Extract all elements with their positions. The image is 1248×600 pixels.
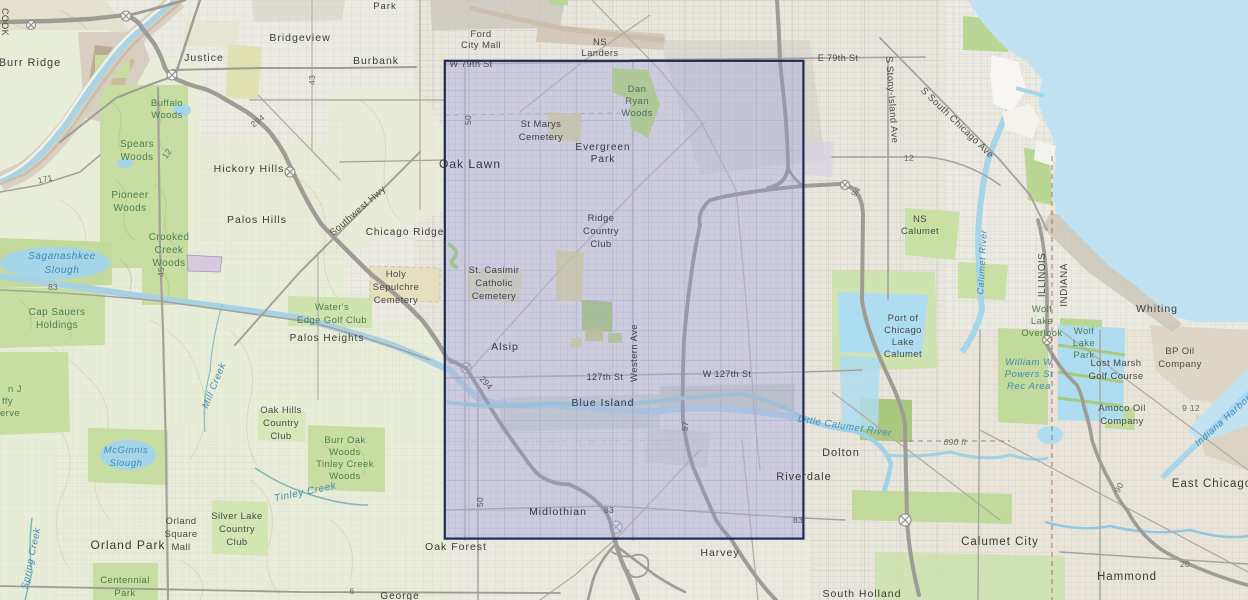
svg-text:Crooked: Crooked xyxy=(149,232,190,243)
svg-text:Creek: Creek xyxy=(155,245,184,256)
svg-text:Woods: Woods xyxy=(329,447,360,458)
svg-text:20: 20 xyxy=(1180,559,1190,569)
svg-text:Company: Company xyxy=(1158,359,1201,370)
svg-text:Hammond: Hammond xyxy=(1097,571,1157,583)
svg-text:Silver Lake: Silver Lake xyxy=(211,511,262,522)
svg-text:Dolton: Dolton xyxy=(822,447,860,459)
svg-text:Country: Country xyxy=(583,226,619,237)
svg-text:Catholic: Catholic xyxy=(475,278,513,289)
svg-text:Pioneer: Pioneer xyxy=(111,190,149,201)
svg-text:Orland: Orland xyxy=(166,516,197,527)
svg-text:Hickory Hills: Hickory Hills xyxy=(214,163,285,175)
svg-text:6: 6 xyxy=(349,586,354,596)
svg-text:NS: NS xyxy=(593,37,607,48)
svg-text:12: 12 xyxy=(904,153,914,163)
svg-text:Powers St: Powers St xyxy=(1005,369,1054,380)
svg-text:Water's: Water's xyxy=(315,302,349,313)
svg-text:Park: Park xyxy=(1073,350,1094,361)
svg-text:Lost Marsh: Lost Marsh xyxy=(1091,358,1142,369)
svg-text:Park: Park xyxy=(591,154,616,165)
svg-text:Palos Hills: Palos Hills xyxy=(227,214,287,226)
svg-text:Calumet City: Calumet City xyxy=(961,536,1039,548)
svg-text:Spears: Spears xyxy=(120,139,154,150)
svg-text:Ryan: Ryan xyxy=(625,96,649,107)
svg-text:Country: Country xyxy=(219,524,255,535)
svg-text:Oak Hills: Oak Hills xyxy=(260,405,302,416)
svg-text:83: 83 xyxy=(48,282,58,292)
svg-text:Alsip: Alsip xyxy=(491,341,519,353)
svg-text:Cemetery: Cemetery xyxy=(472,291,516,302)
svg-text:Lake: Lake xyxy=(892,337,914,348)
svg-text:Club: Club xyxy=(226,537,247,548)
svg-text:Rec Area: Rec Area xyxy=(1007,381,1051,392)
svg-text:Club: Club xyxy=(590,239,611,250)
svg-text:Woods: Woods xyxy=(121,152,154,163)
svg-text:Golf Course: Golf Course xyxy=(1088,371,1143,382)
svg-text:45: 45 xyxy=(156,267,166,277)
svg-text:Square: Square xyxy=(164,529,197,540)
svg-text:NS: NS xyxy=(913,214,927,225)
svg-text:Wolf: Wolf xyxy=(1032,304,1052,315)
svg-text:Lake: Lake xyxy=(1073,338,1095,349)
svg-text:INDIANA: INDIANA xyxy=(1059,263,1070,306)
svg-text:50: 50 xyxy=(463,115,473,125)
svg-text:George: George xyxy=(380,591,419,600)
svg-text:COOK: COOK xyxy=(0,8,10,36)
svg-text:Company: Company xyxy=(1100,416,1143,427)
svg-text:Slough: Slough xyxy=(109,458,142,469)
svg-text:Cap Sauers: Cap Sauers xyxy=(29,307,86,318)
svg-text:Woods: Woods xyxy=(151,110,182,121)
svg-text:Harvey: Harvey xyxy=(700,547,739,559)
svg-text:ffy: ffy xyxy=(2,396,13,407)
svg-text:Edge Golf Club: Edge Golf Club xyxy=(297,315,367,326)
svg-text:Saganashkee: Saganashkee xyxy=(28,251,96,262)
svg-text:Blue Island: Blue Island xyxy=(572,397,635,409)
svg-text:Chicago Ridge: Chicago Ridge xyxy=(366,227,445,238)
svg-text:Port of: Port of xyxy=(888,313,919,324)
svg-text:Whiting: Whiting xyxy=(1136,303,1178,315)
svg-text:Riverdale: Riverdale xyxy=(776,471,831,483)
svg-text:Country: Country xyxy=(263,418,299,429)
svg-text:Woods: Woods xyxy=(621,108,652,119)
svg-text:Oak Lawn: Oak Lawn xyxy=(439,157,501,171)
svg-text:BP Oil: BP Oil xyxy=(1165,346,1194,357)
svg-text:Overlook: Overlook xyxy=(1021,328,1062,339)
svg-text:83: 83 xyxy=(604,505,614,515)
svg-text:W 127th St: W 127th St xyxy=(703,369,752,379)
svg-text:9 12: 9 12 xyxy=(1182,403,1200,413)
svg-text:Centennial: Centennial xyxy=(100,575,149,586)
svg-text:Bridgeview: Bridgeview xyxy=(269,32,330,44)
svg-text:Oak Forest: Oak Forest xyxy=(425,541,487,553)
svg-text:Dan: Dan xyxy=(628,84,647,95)
svg-text:Calumet: Calumet xyxy=(884,349,922,360)
svg-text:Wolf: Wolf xyxy=(1074,326,1094,337)
svg-text:Park: Park xyxy=(373,1,397,12)
svg-text:Park: Park xyxy=(114,588,135,599)
svg-text:Midlothian: Midlothian xyxy=(529,506,587,518)
svg-text:n J: n J xyxy=(8,384,22,395)
svg-text:43: 43 xyxy=(307,75,317,85)
svg-text:E 79th St: E 79th St xyxy=(818,53,859,63)
svg-text:Holdings: Holdings xyxy=(36,320,78,331)
svg-text:83: 83 xyxy=(793,515,803,525)
svg-text:ILLINOIS: ILLINOIS xyxy=(1037,253,1048,297)
svg-text:St. Casimir: St. Casimir xyxy=(469,265,520,276)
svg-text:Burbank: Burbank xyxy=(353,55,399,67)
svg-text:Ridge: Ridge xyxy=(588,213,615,224)
svg-text:690 ft: 690 ft xyxy=(943,437,966,447)
svg-text:Landers: Landers xyxy=(581,48,618,59)
svg-text:Sepulchre: Sepulchre xyxy=(373,282,419,293)
svg-text:Ford: Ford xyxy=(470,29,491,40)
svg-text:Club: Club xyxy=(270,431,291,442)
svg-text:50: 50 xyxy=(475,497,485,507)
svg-text:Holy: Holy xyxy=(386,269,407,280)
svg-text:Tinley Creek: Tinley Creek xyxy=(316,459,374,470)
svg-text:Slough: Slough xyxy=(45,265,80,276)
svg-text:57: 57 xyxy=(680,421,691,432)
svg-text:127th St: 127th St xyxy=(587,372,624,382)
svg-text:City Mall: City Mall xyxy=(461,40,501,51)
svg-text:Justice: Justice xyxy=(184,52,224,64)
svg-text:Mall: Mall xyxy=(171,542,190,553)
svg-text:Palos Heights: Palos Heights xyxy=(290,333,365,344)
svg-text:Western Ave: Western Ave xyxy=(629,324,640,382)
svg-text:erve: erve xyxy=(0,408,20,419)
svg-text:Burr Oak: Burr Oak xyxy=(324,435,365,446)
svg-text:South Holland: South Holland xyxy=(823,588,902,600)
svg-text:Evergreen: Evergreen xyxy=(575,142,630,153)
svg-text:Amoco Oil: Amoco Oil xyxy=(1098,403,1145,414)
svg-text:St Marys: St Marys xyxy=(521,119,562,130)
svg-text:Woods: Woods xyxy=(114,203,147,214)
svg-text:Cemetery: Cemetery xyxy=(374,295,418,306)
svg-text:McGinnis: McGinnis xyxy=(104,445,148,456)
svg-text:Burr Ridge: Burr Ridge xyxy=(0,57,61,69)
svg-text:William W: William W xyxy=(1005,357,1053,368)
svg-text:East Chicago: East Chicago xyxy=(1172,478,1248,490)
svg-text:Orland Park: Orland Park xyxy=(90,538,165,552)
svg-text:Calumet: Calumet xyxy=(901,226,939,237)
svg-text:W 79th St: W 79th St xyxy=(449,59,492,69)
svg-text:Chicago: Chicago xyxy=(884,325,922,336)
svg-text:Lake: Lake xyxy=(1031,316,1053,327)
svg-text:Cemetery: Cemetery xyxy=(519,132,563,143)
svg-text:Buffalo: Buffalo xyxy=(151,98,183,109)
